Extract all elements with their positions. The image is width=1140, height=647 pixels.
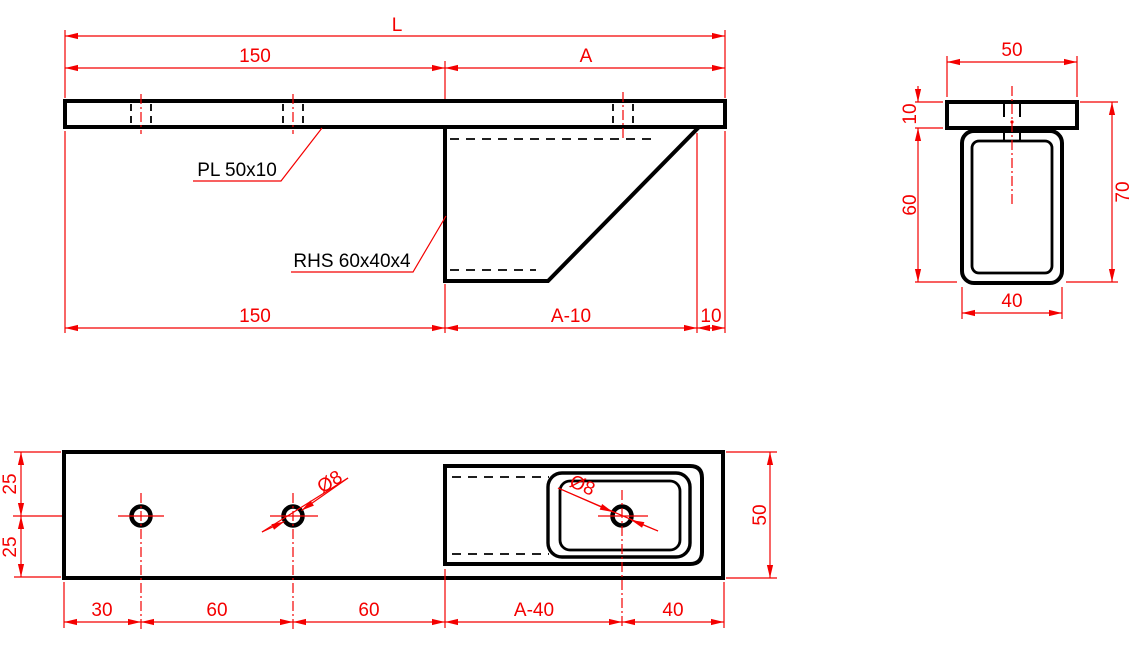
dim-label-A-40: A-40 — [514, 600, 554, 621]
dim-label-40: 40 — [1001, 291, 1022, 312]
dim-label-25-top: 25 — [0, 473, 21, 494]
dim-label-150-bottom: 150 — [239, 306, 271, 327]
centerline-dot — [1010, 120, 1013, 123]
dim-label-150-top: 150 — [239, 46, 271, 67]
dim-label-10: 10 — [900, 103, 921, 124]
dim-label-L: L — [392, 15, 403, 36]
plate-outline-side — [65, 101, 725, 127]
plate-size-label: PL 50x10 — [197, 160, 277, 181]
dim-label-A-10: A-10 — [551, 306, 591, 327]
side-view: L 150 A PL 50x10 RHS 60x40x4 150 A-10 10 — [65, 15, 725, 333]
dim-label-60-b: 60 — [358, 600, 379, 621]
dim-label-50: 50 — [1001, 40, 1022, 61]
dim-label-10: 10 — [700, 306, 721, 327]
dim-label-60-a: 60 — [206, 600, 227, 621]
dim-label-60: 60 — [900, 194, 921, 215]
cad-drawing: L 150 A PL 50x10 RHS 60x40x4 150 A-10 10 — [0, 0, 1140, 647]
drawing-sheet: L 150 A PL 50x10 RHS 60x40x4 150 A-10 10 — [0, 0, 1140, 647]
dim-label-25-bottom: 25 — [0, 536, 21, 557]
rhs-outline-side — [445, 127, 698, 281]
dim-label-50: 50 — [750, 504, 771, 525]
section-view: 50 10 60 70 40 — [900, 40, 1134, 319]
dim-label-40: 40 — [662, 600, 683, 621]
rhs-size-label: RHS 60x40x4 — [293, 251, 411, 272]
plan-view: 25 25 50 Ø8 Ø8 30 60 60 A-40 40 — [0, 452, 777, 629]
dim-label-A: A — [580, 46, 593, 67]
dim-label-70: 70 — [1113, 181, 1134, 202]
dim-label-30: 30 — [91, 600, 112, 621]
